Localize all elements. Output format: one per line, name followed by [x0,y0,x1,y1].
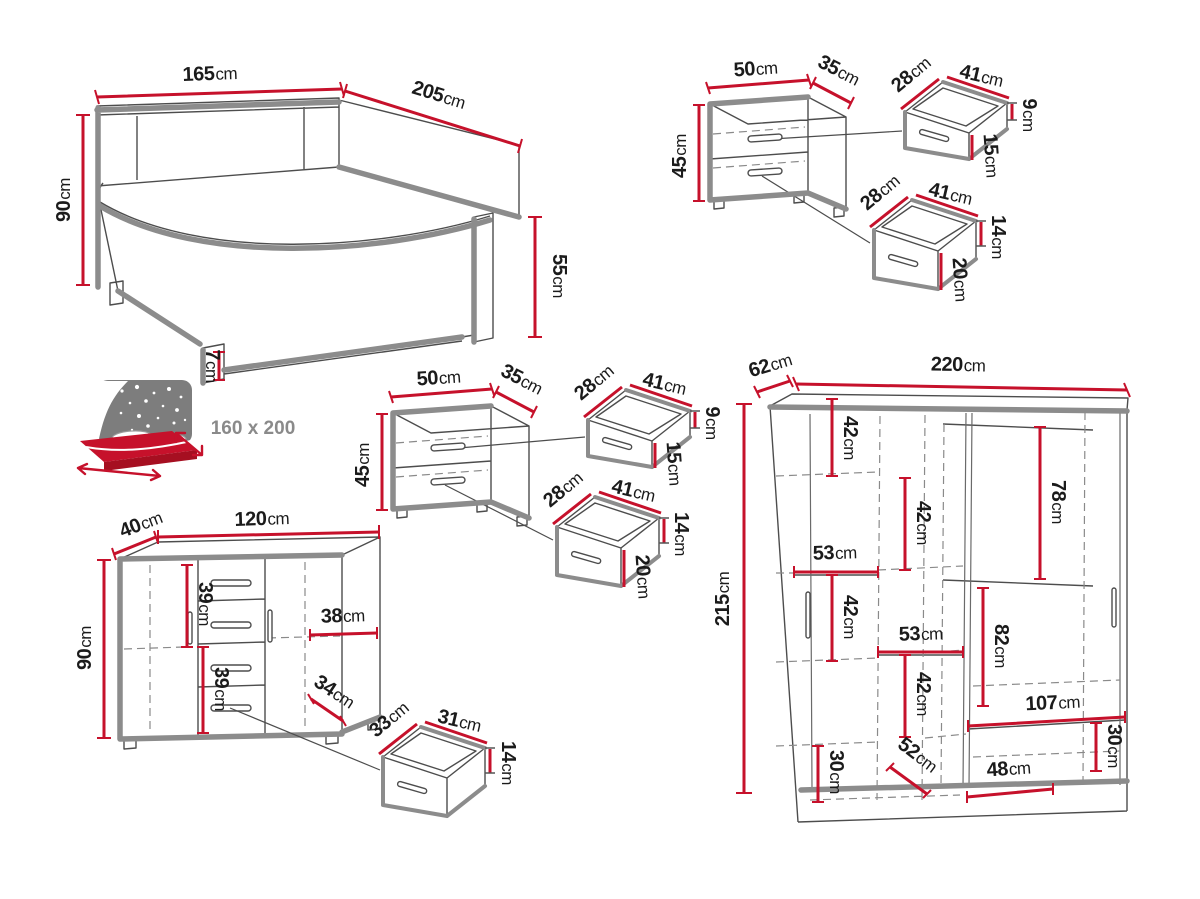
dresser-drawer: 33cm 31cm 14cm [365,697,519,816]
furniture-dimensions-diagram: 165cm 205cm 90cm 55cm 7cm 160 x 200 50cm… [0,0,1200,899]
wardrobe-outline [770,394,1128,822]
wardrobe-top-left-label: 42cm [839,416,861,460]
nightstand-middle-width-label: 50cm [416,365,462,390]
wardrobe-right-middle-label: 82cm [990,624,1012,668]
wardrobe-middle-left-label: 42cm [839,595,861,639]
nightstand-shape [693,74,854,217]
dresser-drawer-opening-label: 34cm [310,671,359,714]
nightstand-top-width-label: 50cm [733,56,779,81]
mattress-size-icon: 160 x 200 [78,380,295,480]
drawer-front-height-label: 20cm [947,257,972,303]
drawer-back-height-label: 9cm [701,406,723,440]
wardrobe-width-label: 220cm [931,354,986,377]
dresser-lower-inner-label: 39cm [210,667,232,711]
door-handle-icon [268,610,272,642]
dresser-right-inner-label: 38cm [320,604,365,628]
nightstand-top-depth-label: 35cm [814,51,863,91]
wardrobe-diagram: 62cm 220cm 215cm 42cm 42cm 53cm 42cm 53c… [712,348,1130,822]
bed-leg-height-label: 7cm [201,349,223,383]
drawer-back-height-label: 14cm [987,215,1009,259]
bed-footboard-height-label: 55cm [548,254,570,298]
mattress-size-label: 160 x 200 [211,418,296,439]
nightstand-shape [376,383,537,526]
drawer-depth-label: 28cm [570,360,618,405]
dresser-diagram: 40cm 120cm 90cm 39cm 39cm 38cm 34cm 33cm… [74,506,519,816]
wardrobe-bottom-width-label: 48cm [986,756,1032,781]
wardrobe-dimension-ticks [736,375,1130,803]
drawer-shape [379,722,495,816]
door-handle-icon [806,592,810,638]
drawer-front-height-label: 20cm [630,554,655,600]
nightstand-middle-height-label: 45cm [352,443,374,487]
drawer-depth-label: 28cm [539,467,587,512]
drawer-depth-label: 28cm [887,52,935,97]
drawer-front-height-label: 15cm [661,441,686,487]
nightstand-middle-drawer1: 28cm 41cm 9cm 15cm [570,360,723,487]
bed-length-label: 205cm [409,77,468,114]
wardrobe-middle-shelf-label: 53cm [898,622,943,646]
nightstand-top-height-label: 45cm [669,134,691,178]
nightstand-middle-drawer2: 28cm 41cm 14cm 20cm [539,467,692,600]
wardrobe-interior-dashes [776,412,1120,800]
drawer-handle-icon [211,580,251,586]
wardrobe-left-shelf-label: 53cm [812,541,857,565]
nightstand-top-body: 50cm 35cm 45cm [669,51,864,217]
drawer-height-label: 14cm [497,741,519,785]
furniture-dimensions-page: 165cm 205cm 90cm 55cm 7cm 160 x 200 50cm… [0,0,1200,899]
wardrobe-edges [770,407,1127,790]
wardrobe-bottom-right-label: 30cm [1103,724,1125,768]
wardrobe-bottom-diagonal-label: 52cm [893,733,942,777]
nightstand-top-diagram: 50cm 35cm 45cm 28cm 41cm 9cm 15cm 28cm 4… [669,51,1040,303]
nightstand-top-drawer1: 28cm 41cm 9cm 15cm [887,52,1040,179]
drawer-depth-label: 33cm [365,697,413,742]
wardrobe-height-label: 215cm [712,571,734,626]
wardrobe-right-upper-label: 78cm [1047,480,1069,524]
door-handle-icon [1112,588,1116,627]
wardrobe-bottom-left-label: 30cm [825,750,847,794]
drawer-handle-icon [211,622,251,628]
bed-headboard-height-label: 90cm [53,178,75,222]
drawer-front-height-label: 15cm [978,133,1003,179]
wardrobe-upper-middle-label: 42cm [912,501,934,545]
leader-line [230,708,380,770]
door-handle-icon [188,612,192,644]
bed-width-label: 165cm [182,62,238,86]
wardrobe-bottom-shelf-label: 107cm [1025,691,1081,716]
drawer-back-height-label: 14cm [670,512,692,556]
drawer-back-height-label: 9cm [1018,98,1040,132]
dresser-width-label: 120cm [234,507,290,531]
nightstand-middle-depth-label: 35cm [497,360,546,400]
dresser-upper-inner-label: 39cm [194,582,216,626]
wardrobe-lower-middle-label: 42cm [912,672,934,716]
drawer-depth-label: 28cm [856,170,904,215]
nightstand-top-drawer2: 28cm 41cm 14cm 20cm [856,170,1009,303]
bed-diagram: 165cm 205cm 90cm 55cm 7cm [53,62,570,383]
nightstand-middle-diagram: 50cm 35cm 45cm 28cm 41cm 9cm 15cm 28cm 4… [352,360,723,600]
dresser-height-label: 90cm [74,626,96,670]
bed-edges [97,102,519,383]
wardrobe-dimension-lines [744,381,1127,802]
